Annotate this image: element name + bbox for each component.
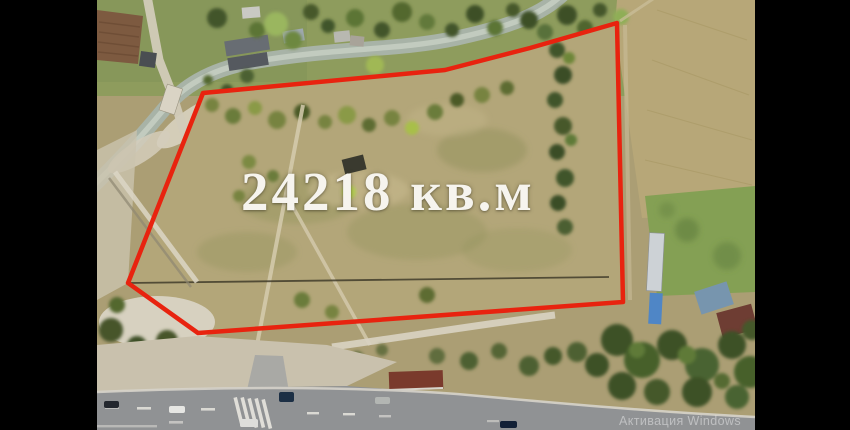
letterbox-right bbox=[755, 0, 850, 430]
windows-activation-watermark: Активация Windows bbox=[619, 414, 741, 428]
area-label: 24218 кв.м bbox=[241, 160, 581, 223]
letterbox-left bbox=[0, 0, 97, 430]
video-frame: 24218 кв.м Активация Windows bbox=[0, 0, 850, 430]
maroon-shed bbox=[389, 370, 444, 391]
